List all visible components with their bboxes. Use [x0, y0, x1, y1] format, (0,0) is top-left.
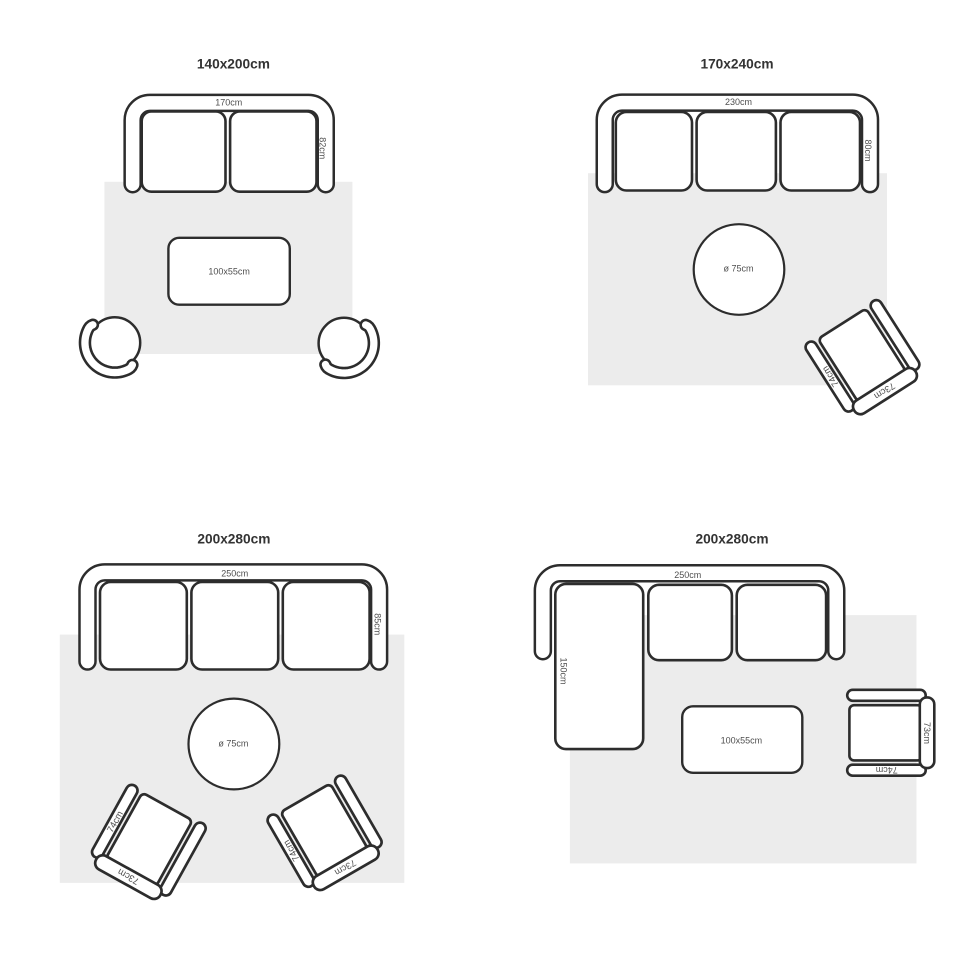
svg-text:ø 75cm: ø 75cm	[218, 738, 248, 748]
svg-text:200x280cm: 200x280cm	[197, 532, 270, 547]
svg-text:ø 75cm: ø 75cm	[723, 263, 753, 273]
svg-text:250cm: 250cm	[674, 570, 701, 580]
svg-text:170cm: 170cm	[215, 97, 242, 107]
svg-text:170x240cm: 170x240cm	[700, 57, 773, 72]
svg-text:100x55cm: 100x55cm	[721, 735, 763, 745]
svg-text:80cm: 80cm	[863, 139, 873, 161]
svg-text:250cm: 250cm	[221, 568, 248, 578]
svg-text:85cm: 85cm	[372, 613, 382, 635]
svg-text:230cm: 230cm	[725, 97, 752, 107]
svg-text:100x55cm: 100x55cm	[208, 266, 250, 276]
svg-text:74cm: 74cm	[876, 765, 898, 775]
svg-text:140x200cm: 140x200cm	[197, 57, 270, 72]
svg-text:82cm: 82cm	[318, 137, 328, 159]
svg-text:200x280cm: 200x280cm	[695, 532, 768, 547]
svg-text:73cm: 73cm	[922, 722, 932, 744]
svg-text:150cm: 150cm	[559, 657, 569, 684]
